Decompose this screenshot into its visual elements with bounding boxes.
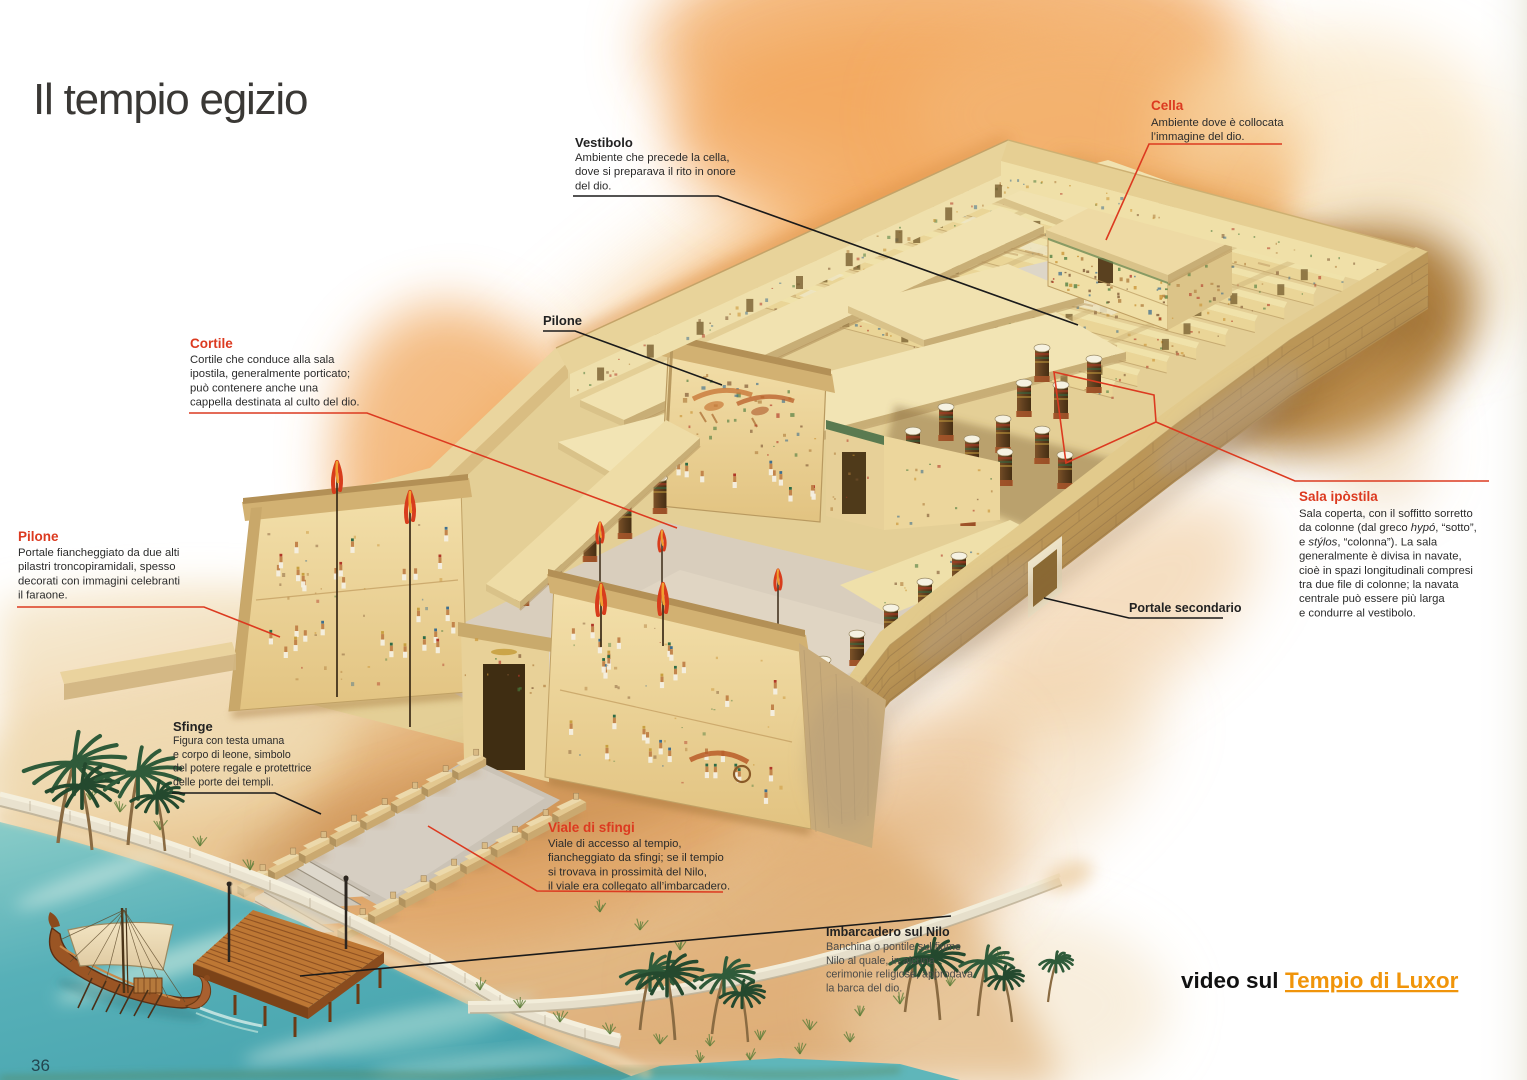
- svg-text:dove si preparava il rito in o: dove si preparava il rito in onore: [575, 166, 736, 178]
- svg-text:cerimonie religiose, approdava: cerimonie religiose, approdava: [826, 969, 973, 981]
- svg-text:Viale di sfingi: Viale di sfingi: [548, 820, 635, 835]
- svg-text:la barca del dio.: la barca del dio.: [826, 982, 902, 994]
- svg-text:Figura con testa umana: Figura con testa umana: [173, 735, 284, 747]
- svg-text:da colonne (dal greco hypó, “s: da colonne (dal greco hypó, “sotto”,: [1299, 522, 1477, 534]
- svg-text:Cella: Cella: [1151, 98, 1184, 113]
- svg-text:video sul: video sul: [1181, 968, 1279, 993]
- svg-text:Sala coperta, con il soffitto: Sala coperta, con il soffitto sorretto: [1299, 508, 1473, 520]
- svg-text:si trovava in prossimità del N: si trovava in prossimità del Nilo,: [548, 866, 707, 878]
- svg-text:l’immagine del dio.: l’immagine del dio.: [1151, 131, 1245, 143]
- svg-text:Sfinge: Sfinge: [173, 719, 213, 734]
- svg-text:Pilone: Pilone: [543, 313, 582, 328]
- svg-text:ipostila, generalmente portica: ipostila, generalmente porticato;: [190, 368, 350, 380]
- svg-text:Portale secondario: Portale secondario: [1129, 601, 1242, 615]
- svg-text:Pilone: Pilone: [18, 529, 59, 544]
- svg-text:e stýlos, “colonna”). La sala: e stýlos, “colonna”). La sala: [1299, 536, 1438, 548]
- svg-text:Cortile: Cortile: [190, 336, 233, 351]
- svg-text:Portale fiancheggiato da due a: Portale fiancheggiato da due alti: [18, 547, 179, 559]
- svg-text:Banchina o pontile sul fiume: Banchina o pontile sul fiume: [826, 941, 961, 953]
- svg-text:cappella destinata al culto de: cappella destinata al culto del dio.: [190, 397, 360, 409]
- svg-text:36: 36: [31, 1056, 50, 1075]
- svg-text:generalmente è divisa in navat: generalmente è divisa in navate,: [1299, 551, 1462, 563]
- svg-text:cioè in spazi longitudinali co: cioè in spazi longitudinali compresi: [1299, 565, 1473, 577]
- svg-text:del dio.: del dio.: [575, 180, 611, 192]
- svg-text:decorati con immagini celebran: decorati con immagini celebranti: [18, 575, 180, 587]
- svg-text:fiancheggiato da sfingi; se il: fiancheggiato da sfingi; se il tempio: [548, 852, 724, 864]
- svg-text:Il tempio egizio: Il tempio egizio: [33, 75, 307, 124]
- svg-text:Ambiente che precede la cella,: Ambiente che precede la cella,: [575, 152, 729, 164]
- svg-text:Nilo al quale, in alcune: Nilo al quale, in alcune: [826, 955, 935, 967]
- svg-text:tra due file di colonne; la na: tra due file di colonne; la navata: [1299, 579, 1459, 591]
- svg-text:Viale di accesso al tempio,: Viale di accesso al tempio,: [548, 838, 682, 850]
- svg-text:pilastri troncopiramidali, spe: pilastri troncopiramidali, spesso: [18, 561, 176, 573]
- svg-text:Sala ipòstila: Sala ipòstila: [1299, 489, 1378, 504]
- svg-text:e condurre al vestibolo.: e condurre al vestibolo.: [1299, 607, 1416, 619]
- svg-text:il faraone.: il faraone.: [18, 590, 68, 602]
- svg-text:centrale può essere più larga: centrale può essere più larga: [1299, 593, 1445, 605]
- svg-text:Ambiente dove è collocata: Ambiente dove è collocata: [1151, 117, 1284, 129]
- svg-text:delle porte dei templi.: delle porte dei templi.: [173, 776, 274, 788]
- svg-text:può contenere anche una: può contenere anche una: [190, 382, 319, 394]
- svg-text:Cortile che conduce alla sala: Cortile che conduce alla sala: [190, 354, 335, 366]
- svg-text:Vestibolo: Vestibolo: [575, 135, 633, 150]
- svg-text:Imbarcadero sul Nilo: Imbarcadero sul Nilo: [826, 925, 950, 939]
- svg-text:del potere regale e protettric: del potere regale e protettrice: [173, 763, 311, 775]
- svg-text:e corpo di leone, simbolo: e corpo di leone, simbolo: [173, 749, 291, 761]
- svg-text:Tempio di Luxor: Tempio di Luxor: [1285, 968, 1459, 993]
